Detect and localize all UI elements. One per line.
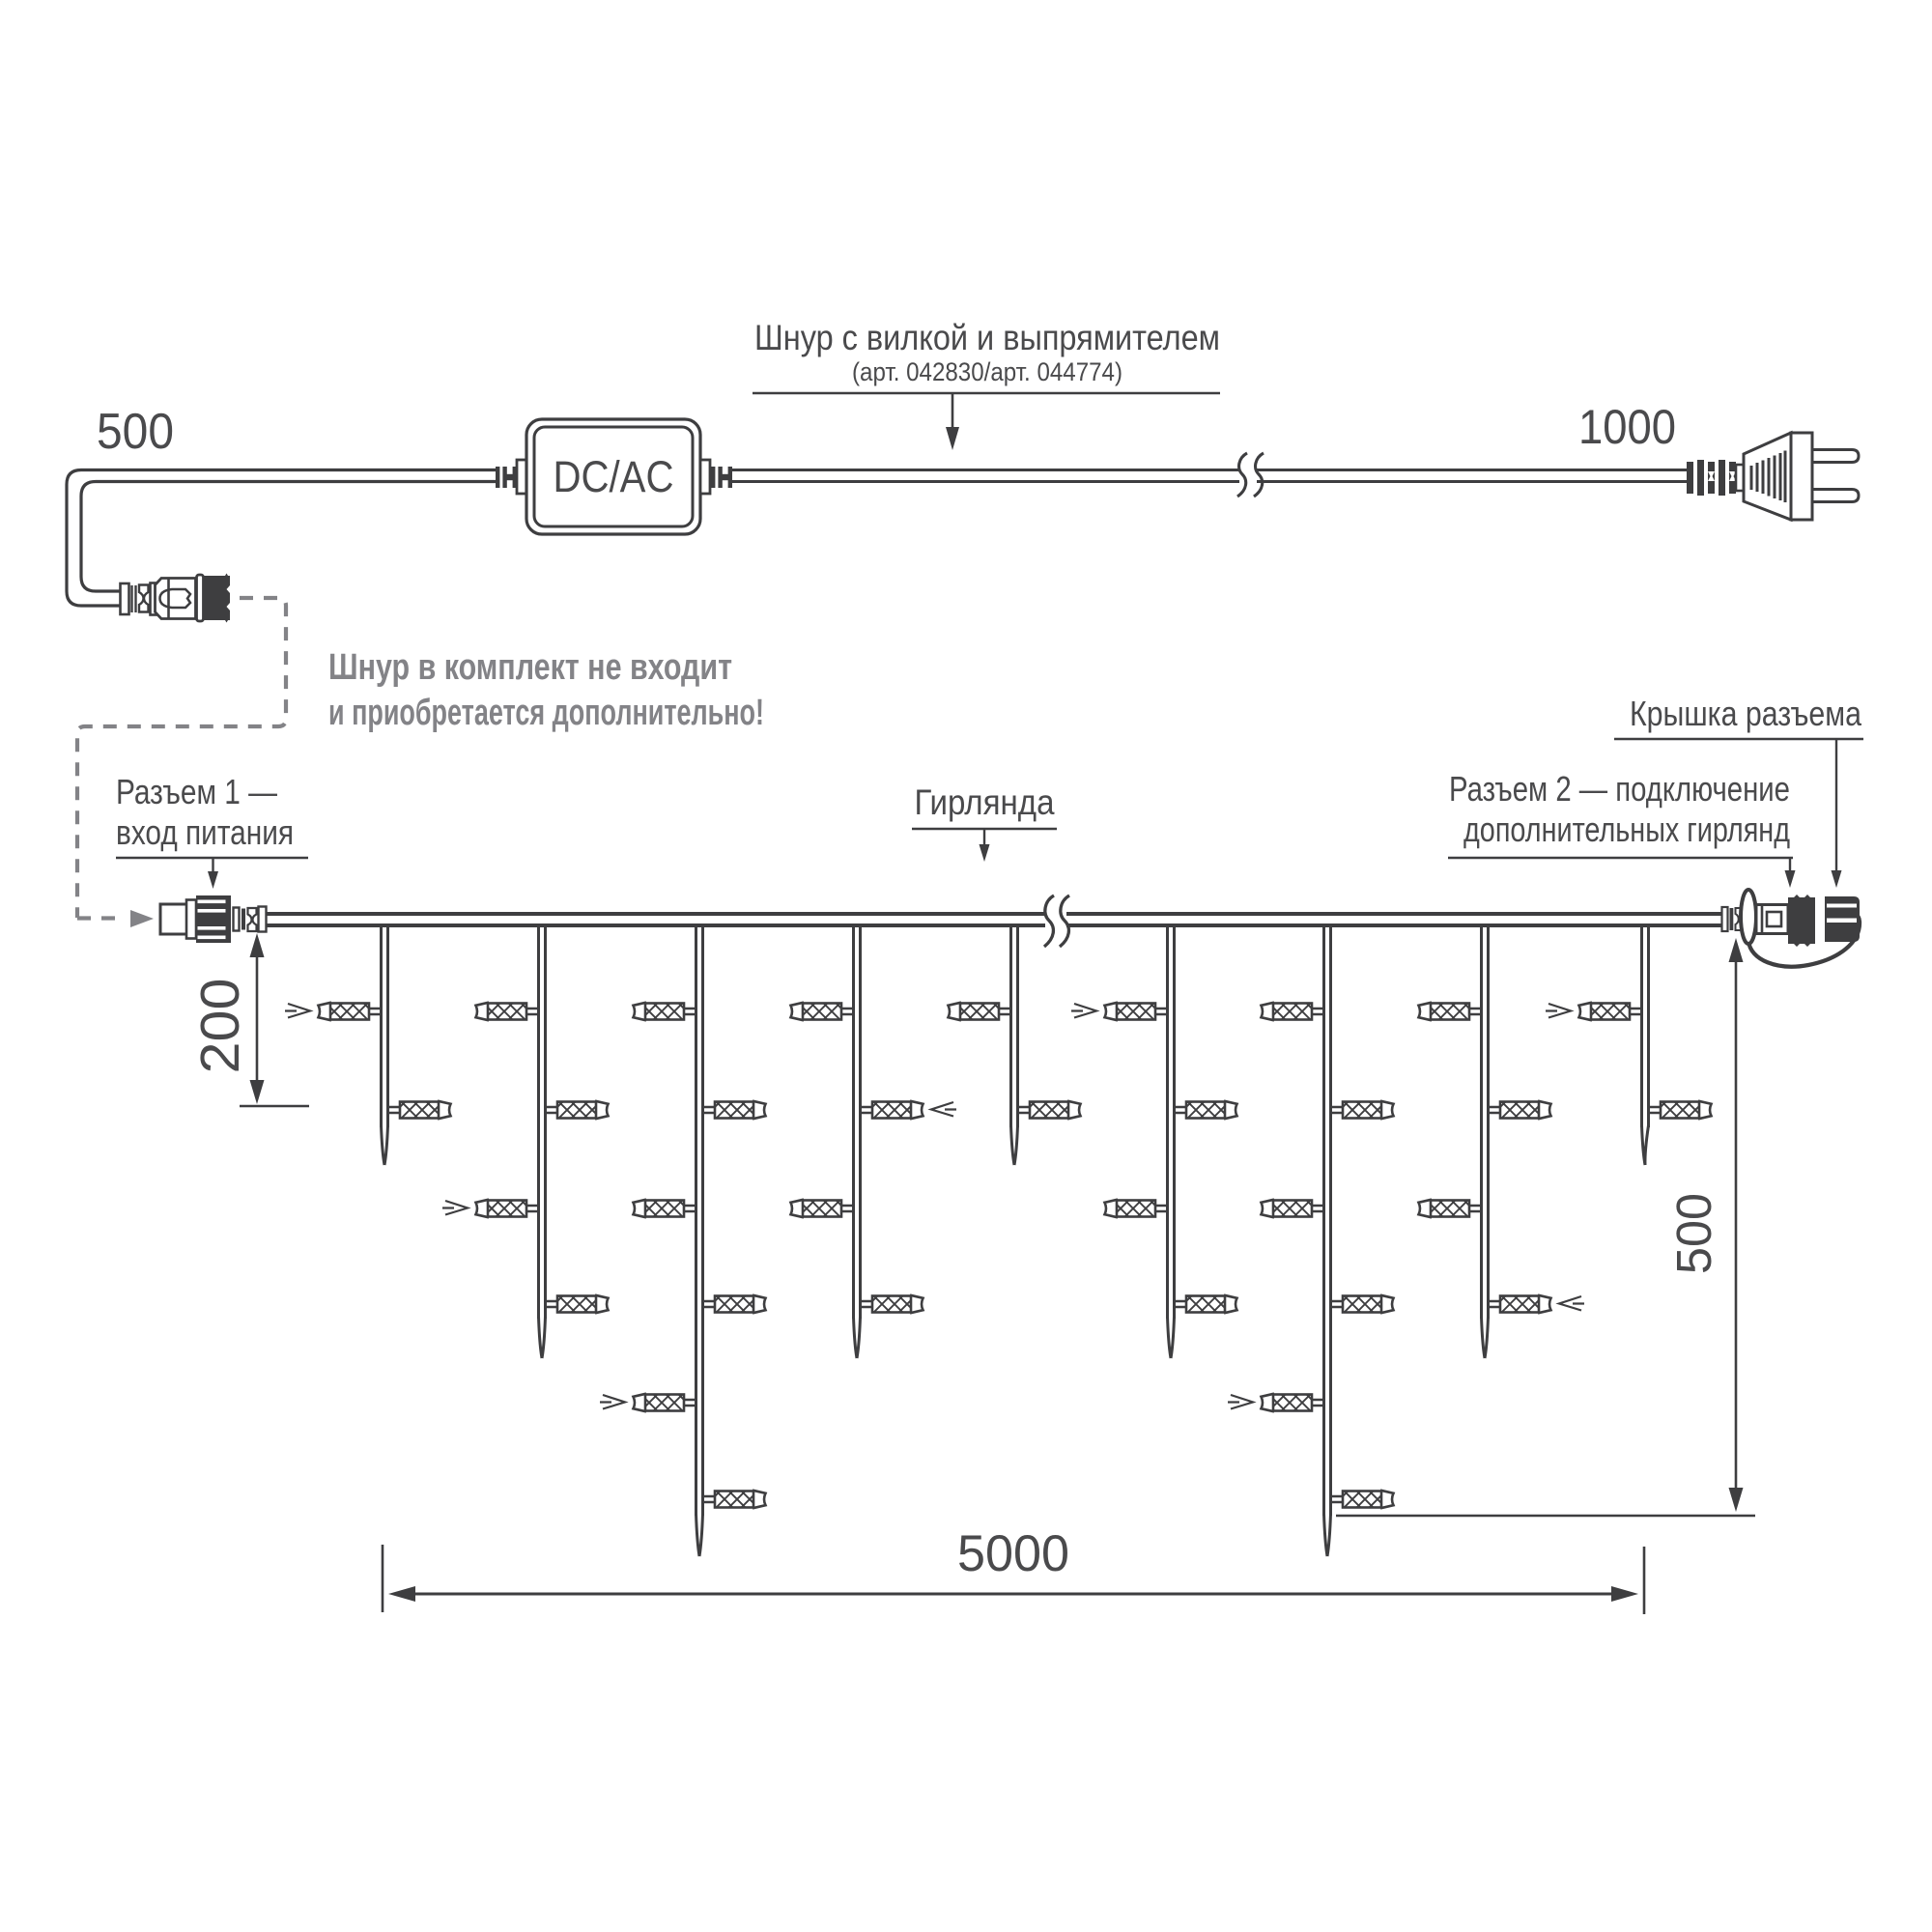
svg-text:DC/AC: DC/AC xyxy=(554,452,674,501)
svg-text:Гирлянда: Гирлянда xyxy=(915,782,1055,822)
svg-text:Крышка разъема: Крышка разъема xyxy=(1630,694,1862,733)
svg-text:1000: 1000 xyxy=(1578,400,1676,454)
svg-text:вход питания: вход питания xyxy=(116,812,294,852)
svg-text:(арт. 042830/арт. 044774): (арт. 042830/арт. 044774) xyxy=(852,357,1122,386)
svg-text:5000: 5000 xyxy=(957,1525,1069,1582)
svg-text:Разъем 2 — подключение: Разъем 2 — подключение xyxy=(1449,769,1790,809)
svg-text:Шнур в комплект не входит: Шнур в комплект не входит xyxy=(328,647,732,688)
svg-text:Разъем 1 —: Разъем 1 — xyxy=(116,772,277,811)
svg-text:500: 500 xyxy=(97,404,174,460)
svg-text:200: 200 xyxy=(189,979,251,1074)
svg-text:и приобретается дополнительно!: и приобретается дополнительно! xyxy=(328,693,764,733)
svg-text:дополнительных гирлянд: дополнительных гирлянд xyxy=(1463,810,1790,849)
svg-text:Шнур с вилкой и выпрямителем: Шнур с вилкой и выпрямителем xyxy=(754,318,1220,357)
svg-text:500: 500 xyxy=(1666,1193,1721,1274)
